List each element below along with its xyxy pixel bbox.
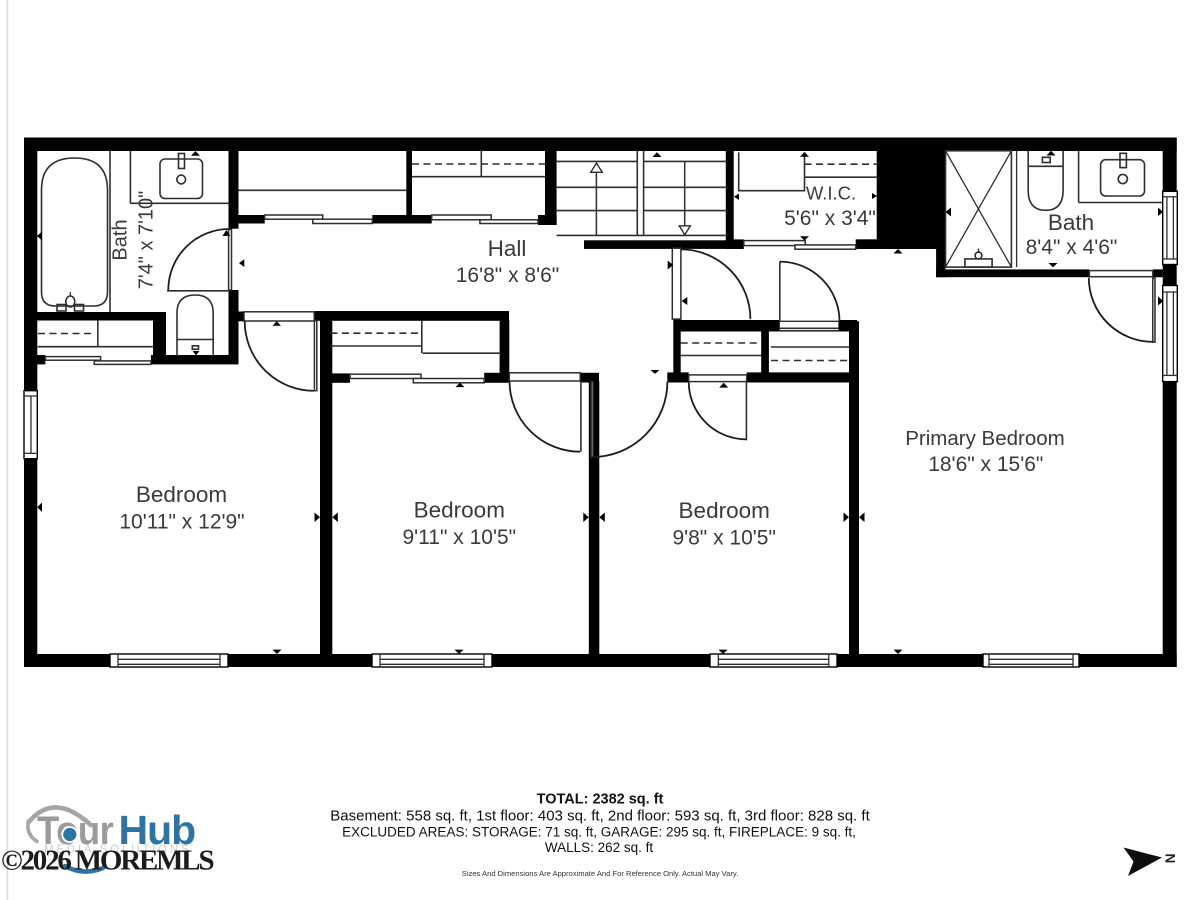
- svg-text:W.I.C.: W.I.C.: [806, 182, 856, 203]
- svg-text:TOTAL: 2382 sq. ft: TOTAL: 2382 sq. ft: [537, 792, 664, 808]
- svg-text:9'11" x 10'5": 9'11" x 10'5": [402, 526, 516, 549]
- svg-text:10'11" x 12'9": 10'11" x 12'9": [119, 510, 244, 533]
- svg-text:18'6" x 15'6": 18'6" x 15'6": [928, 453, 1043, 476]
- svg-text:WALLS: 262 sq. ft: WALLS: 262 sq. ft: [545, 840, 654, 855]
- svg-text:©2026 MOREMLS: ©2026 MOREMLS: [1, 845, 213, 877]
- svg-text:Bath: Bath: [110, 219, 132, 260]
- svg-text:Bedroom: Bedroom: [414, 497, 505, 522]
- svg-text:9'8" x 10'5": 9'8" x 10'5": [672, 527, 776, 550]
- svg-text:EXCLUDED AREAS: STORAGE: 71 sq: EXCLUDED AREAS: STORAGE: 71 sq. ft, GARA…: [342, 824, 856, 839]
- svg-text:Sizes And Dimensions Are Appro: Sizes And Dimensions Are Approximate And…: [462, 869, 738, 878]
- svg-text:16'8" x 8'6": 16'8" x 8'6": [456, 264, 560, 287]
- svg-text:8'4" x 4'6": 8'4" x 4'6": [1026, 236, 1118, 259]
- svg-text:Bedroom: Bedroom: [679, 498, 770, 523]
- svg-text:Basement: 558 sq. ft, 1st floo: Basement: 558 sq. ft, 1st floor: 403 sq.…: [330, 808, 870, 825]
- svg-text:5'6" x 3'4": 5'6" x 3'4": [784, 207, 876, 230]
- svg-text:Bath: Bath: [1048, 210, 1094, 235]
- svg-text:Bedroom: Bedroom: [136, 482, 227, 507]
- svg-text:7'4" x 7'10": 7'4" x 7'10": [136, 191, 158, 290]
- svg-text:Primary Bedroom: Primary Bedroom: [905, 427, 1065, 450]
- svg-text:Hall: Hall: [488, 236, 527, 261]
- svg-text:N: N: [1163, 854, 1178, 864]
